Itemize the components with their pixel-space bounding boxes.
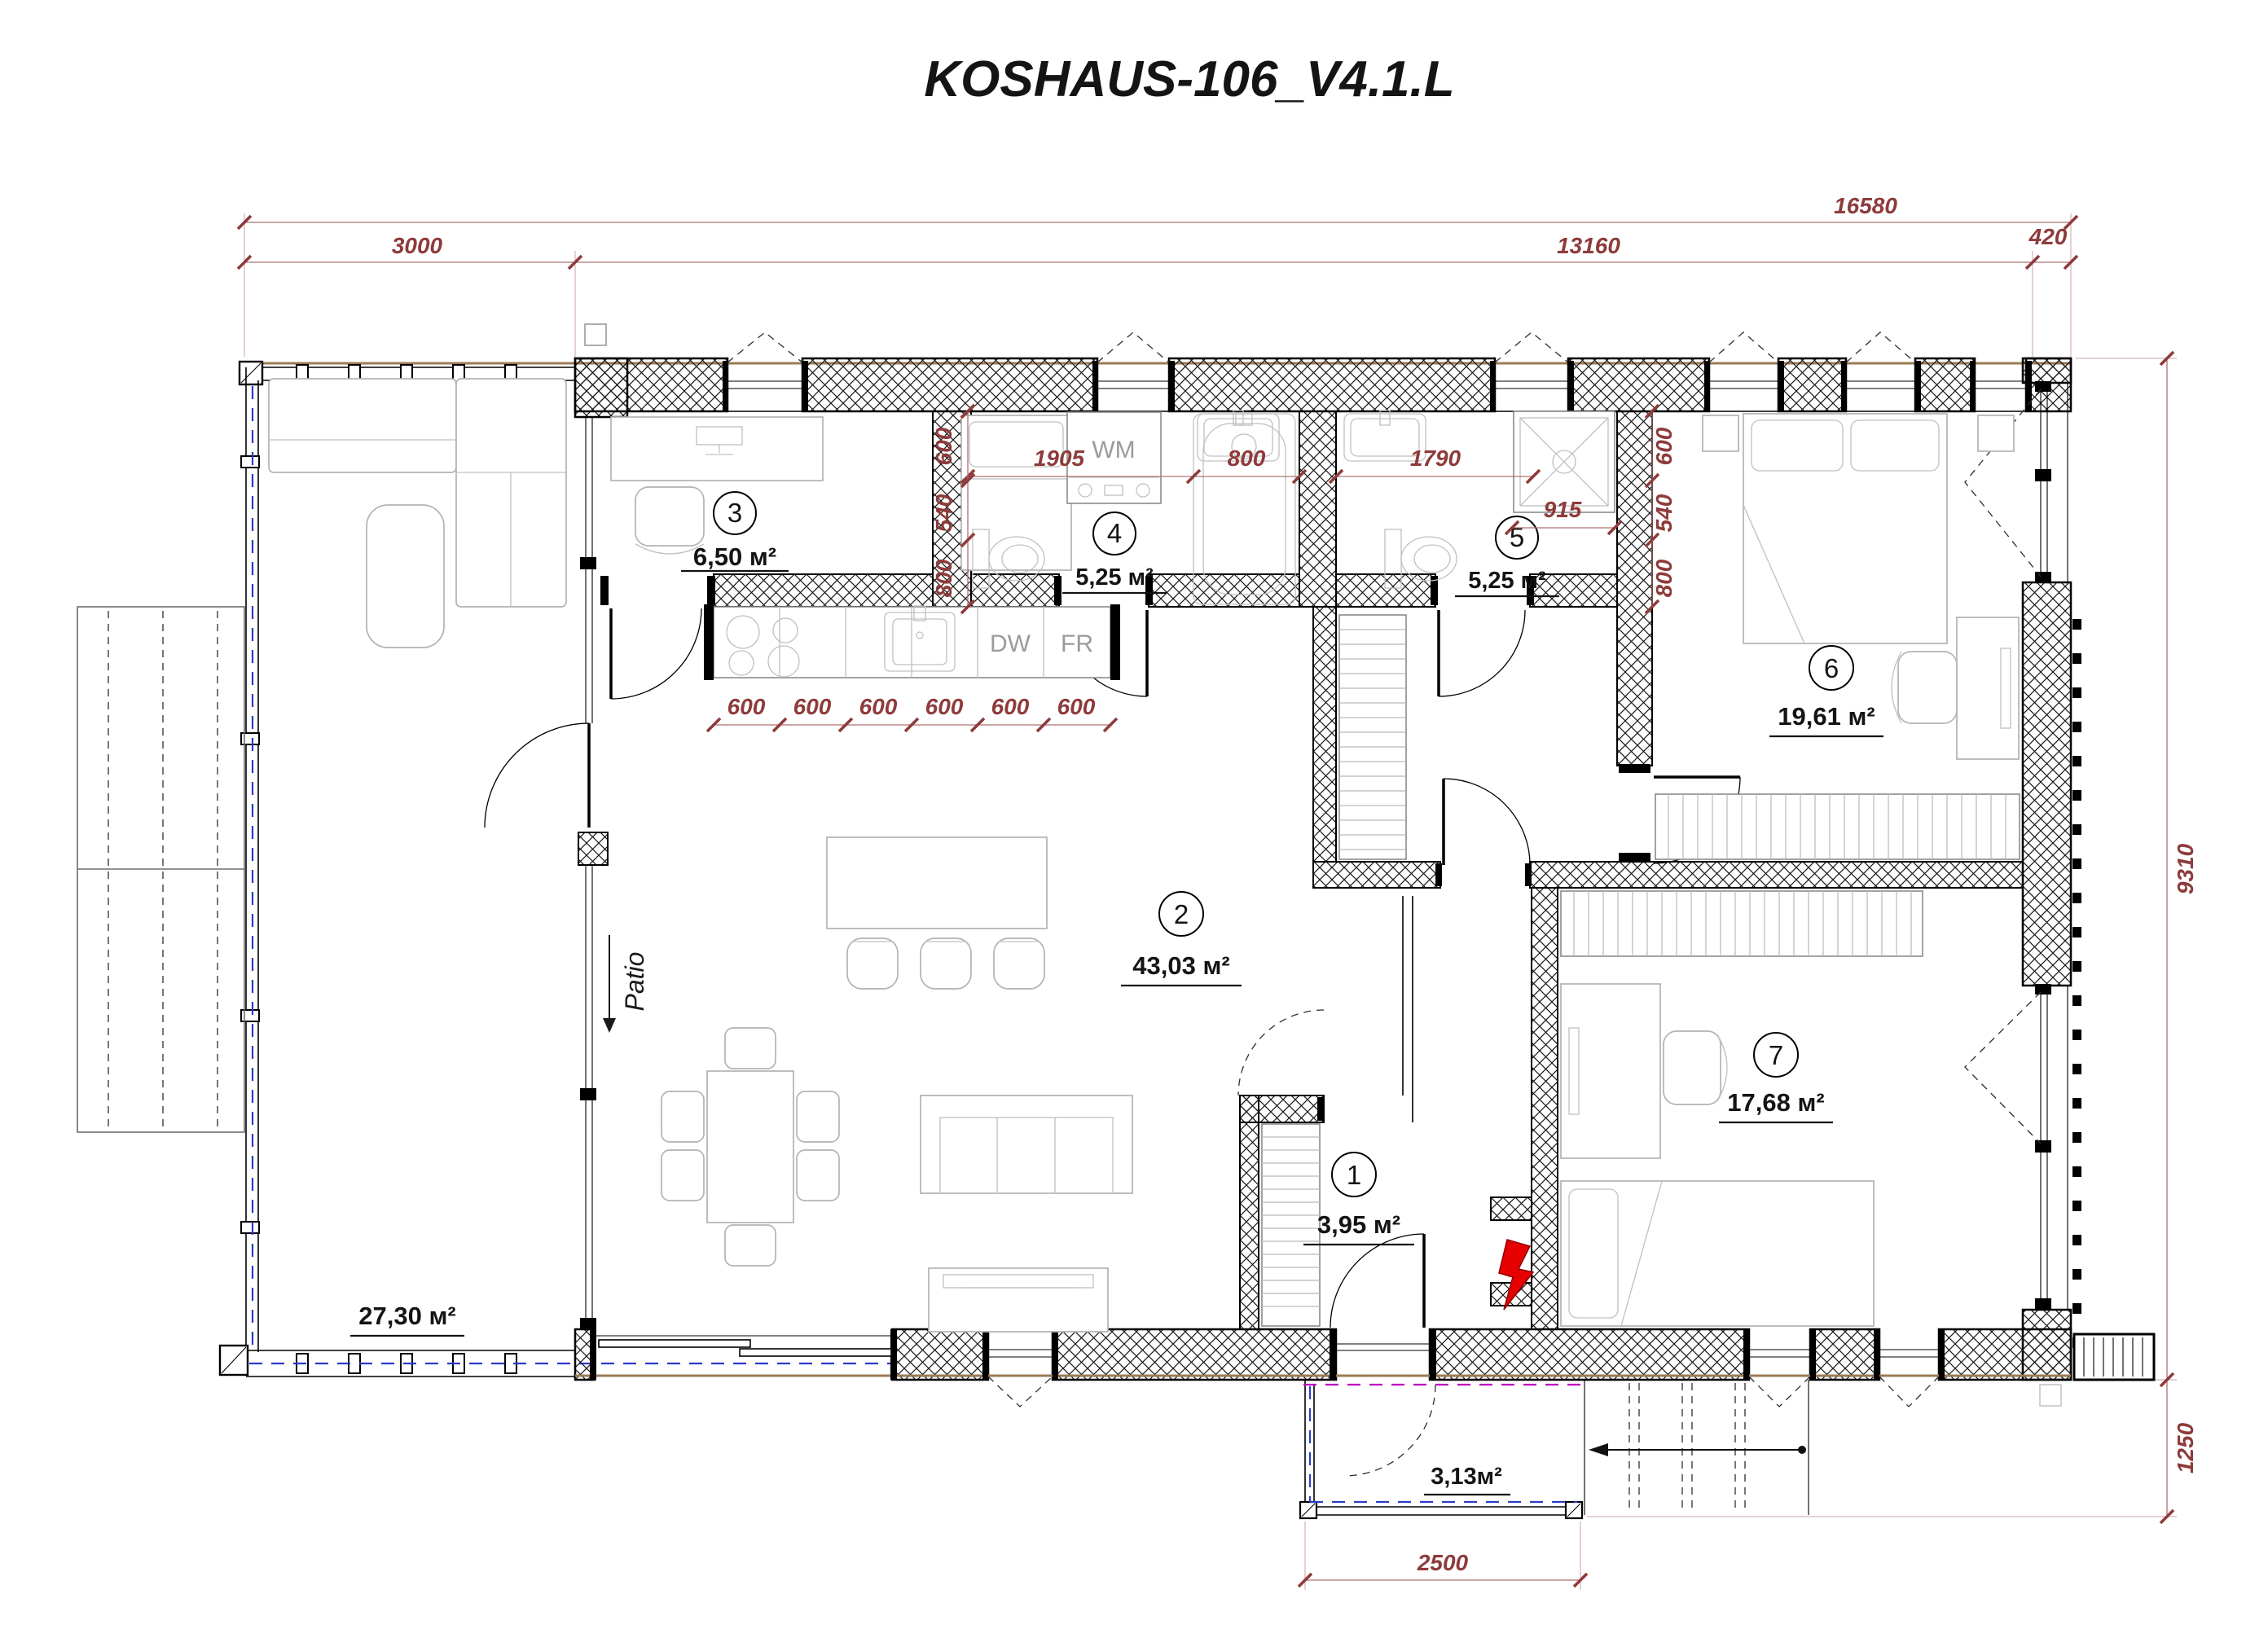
wardrobe bbox=[1262, 1124, 1320, 1326]
dimensions-top: 16580 3000 13160 420 bbox=[238, 193, 2077, 357]
door-room3 bbox=[600, 576, 715, 699]
wall-hall bbox=[1313, 862, 1440, 888]
wall-hall-spine bbox=[1313, 607, 1336, 862]
dim-terrace-width: 3000 bbox=[392, 233, 443, 258]
dining-table bbox=[661, 1028, 839, 1266]
window bbox=[982, 1329, 1059, 1407]
wall-room1-left bbox=[1240, 1096, 1259, 1329]
dim-bath4-width: 1905 bbox=[1034, 446, 1085, 471]
porch-area-label: 3,13м² bbox=[1431, 1464, 1502, 1490]
dim-house-depth: 9310 bbox=[2173, 843, 2198, 894]
dim-bath5-shower: 915 bbox=[1544, 497, 1582, 522]
single-bed bbox=[1561, 1181, 1874, 1326]
desk bbox=[1561, 984, 1727, 1158]
wardrobe bbox=[1561, 891, 1923, 956]
svg-text:540: 540 bbox=[1651, 494, 1677, 532]
door-hall bbox=[1435, 779, 1532, 886]
kitchen: DW FR bbox=[704, 604, 1120, 989]
nightstand bbox=[1978, 415, 2014, 451]
nightstand bbox=[1703, 415, 1738, 451]
single-bed bbox=[961, 415, 1071, 570]
sliding-door bbox=[590, 1329, 897, 1380]
right-wall-cladding bbox=[2072, 619, 2081, 1348]
wall-room6-room7-divider bbox=[1530, 862, 2023, 888]
svg-text:17,68 м²: 17,68 м² bbox=[1727, 1088, 1824, 1117]
porch-steps bbox=[1585, 1380, 1809, 1515]
wall-bath5-bottom-left bbox=[1336, 574, 1435, 607]
window bbox=[1874, 1329, 1945, 1407]
dim-bath4-tub: 800 bbox=[1228, 446, 1266, 471]
svg-text:3: 3 bbox=[727, 498, 742, 528]
dishwasher-label: DW bbox=[990, 630, 1031, 657]
sofa bbox=[921, 1096, 1132, 1193]
patio-direction: Patio bbox=[603, 935, 649, 1033]
washing-machine-label: WM bbox=[1092, 437, 1135, 463]
entrance-door bbox=[1330, 1234, 1436, 1476]
floor-plan-sheet: KOSHAUS-106_V4.1.L 16580 3000 13160 420 … bbox=[0, 0, 2268, 1629]
patio-label: Patio bbox=[620, 952, 649, 1012]
wall-room7-left bbox=[1532, 888, 1558, 1329]
patio-door bbox=[485, 723, 608, 865]
door-bath5 bbox=[1431, 576, 1534, 696]
room3-furniture bbox=[611, 415, 1071, 570]
window bbox=[1965, 984, 2051, 1310]
svg-text:600: 600 bbox=[859, 694, 898, 719]
fridge-label: FR bbox=[1061, 630, 1093, 657]
tv-console bbox=[929, 1268, 1108, 1332]
floor-plan-drawing: KOSHAUS-106_V4.1.L 16580 3000 13160 420 … bbox=[0, 0, 2268, 1629]
svg-text:540: 540 bbox=[931, 494, 956, 532]
terrace-coffee-table bbox=[367, 505, 444, 648]
svg-text:600: 600 bbox=[1057, 694, 1096, 719]
terrace-area-label: 27,30 м² bbox=[358, 1302, 455, 1330]
double-bed bbox=[1743, 414, 1947, 643]
svg-text:800: 800 bbox=[1651, 559, 1677, 597]
wall-bath4-bottom-left bbox=[971, 574, 1059, 607]
kitchen-island bbox=[827, 837, 1047, 989]
entrance-porch: 3,13м² 2500 bbox=[1299, 1380, 1809, 1590]
svg-text:4: 4 bbox=[1107, 518, 1122, 548]
room6-furniture bbox=[1655, 414, 2020, 859]
svg-text:5,25 м²: 5,25 м² bbox=[1468, 568, 1546, 594]
svg-text:600: 600 bbox=[931, 427, 956, 465]
dim-house-width: 13160 bbox=[1557, 233, 1620, 258]
room4-label: 4 5,25 м² bbox=[1062, 512, 1167, 593]
svg-text:1: 1 bbox=[1347, 1160, 1361, 1190]
wall-bath-spine bbox=[1299, 411, 1336, 607]
window bbox=[1703, 332, 1785, 411]
dim-overall-width: 16580 bbox=[1834, 193, 1897, 218]
dim-porch-width: 2500 bbox=[1417, 1550, 1469, 1575]
svg-text:6: 6 bbox=[1824, 653, 1839, 683]
window bbox=[1091, 332, 1176, 411]
svg-text:5,25 м²: 5,25 м² bbox=[1075, 564, 1154, 591]
svg-text:800: 800 bbox=[931, 559, 956, 597]
svg-text:6,50 м²: 6,50 м² bbox=[693, 542, 776, 571]
roof-vent bbox=[585, 324, 606, 345]
wall-room6-left bbox=[1617, 411, 1652, 766]
svg-text:600: 600 bbox=[991, 694, 1030, 719]
room6-label: 6 19,61 м² bbox=[1769, 646, 1883, 736]
svg-text:19,61 м²: 19,61 м² bbox=[1778, 702, 1875, 731]
svg-text:2: 2 bbox=[1174, 899, 1189, 929]
hall-wardrobe bbox=[1339, 615, 1406, 859]
svg-text:600: 600 bbox=[793, 694, 832, 719]
wall-niche-top bbox=[1491, 1197, 1532, 1220]
svg-text:43,03 м²: 43,03 м² bbox=[1132, 951, 1229, 980]
room5-label: 5 5,25 м² bbox=[1455, 516, 1559, 596]
svg-text:600: 600 bbox=[727, 694, 766, 719]
dim-porch-depth: 1250 bbox=[2173, 1422, 2198, 1473]
wall-room3-bottom bbox=[714, 574, 933, 607]
wall-bath4-bottom-right bbox=[1149, 574, 1299, 607]
window bbox=[1488, 332, 1575, 411]
dim-bath5-width: 1790 bbox=[1410, 446, 1461, 471]
drawing-title: KOSHAUS-106_V4.1.L bbox=[924, 51, 1454, 108]
svg-text:3,95 м²: 3,95 м² bbox=[1317, 1210, 1400, 1239]
svg-text:7: 7 bbox=[1769, 1040, 1783, 1070]
terrace-side-steps bbox=[77, 607, 244, 1132]
room7-label: 7 17,68 м² bbox=[1719, 1033, 1833, 1122]
svg-text:600: 600 bbox=[925, 694, 964, 719]
wardrobe bbox=[1655, 794, 2020, 859]
window bbox=[1743, 1329, 1816, 1407]
window bbox=[721, 332, 809, 411]
window bbox=[1839, 332, 1922, 411]
dim-right-offset: 420 bbox=[2028, 224, 2068, 249]
room2-label: 2 43,03 м² bbox=[1121, 892, 1242, 986]
living-dining-furniture bbox=[661, 1028, 1132, 1332]
svg-text:600: 600 bbox=[1651, 427, 1677, 465]
